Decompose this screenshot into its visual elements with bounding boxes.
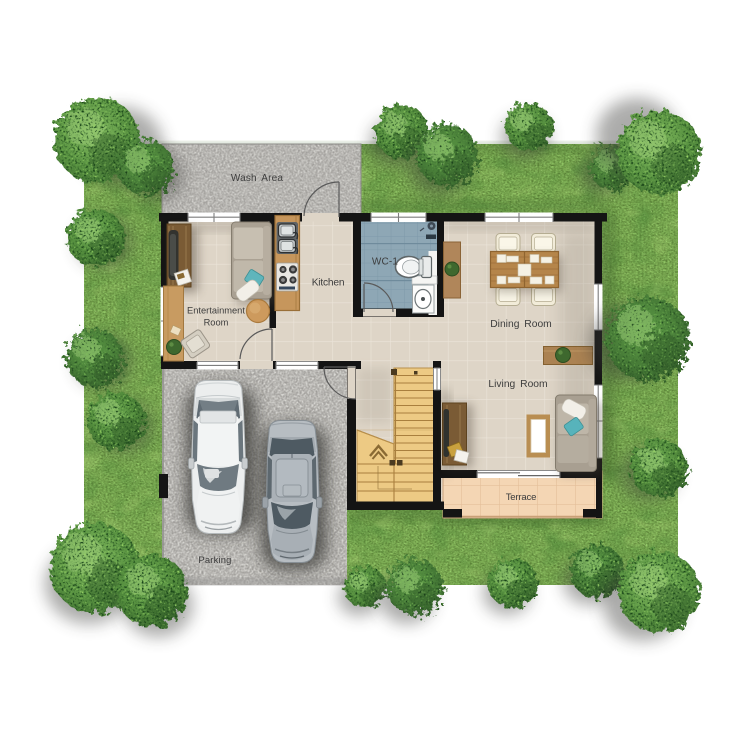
- svg-text:Parking: Parking: [198, 554, 231, 565]
- svg-text:Dining Room: Dining Room: [490, 319, 552, 330]
- svg-text:Terrace: Terrace: [506, 492, 537, 503]
- svg-text:Living Room: Living Room: [488, 379, 547, 390]
- svg-text:Wash Area: Wash Area: [231, 173, 284, 184]
- svg-text:WC-1: WC-1: [372, 257, 399, 268]
- svg-text:Kitchen: Kitchen: [312, 278, 345, 289]
- svg-text:Room: Room: [204, 318, 229, 328]
- svg-text:Entertainment: Entertainment: [187, 306, 245, 316]
